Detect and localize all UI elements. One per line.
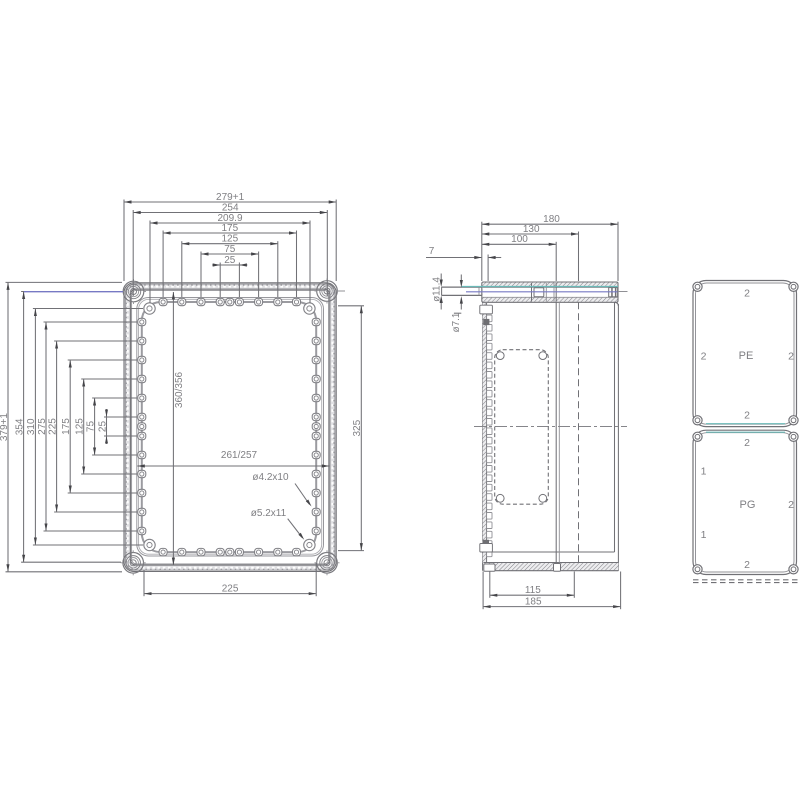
svg-text:2: 2 [701, 351, 707, 363]
svg-text:354: 354 [14, 418, 25, 435]
svg-text:75: 75 [224, 244, 236, 255]
svg-text:185: 185 [525, 596, 542, 607]
svg-text:ø5.2x11: ø5.2x11 [251, 508, 287, 519]
svg-text:310: 310 [26, 418, 37, 435]
svg-text:115: 115 [525, 585, 541, 596]
svg-text:254: 254 [222, 202, 239, 213]
svg-text:2: 2 [744, 288, 750, 300]
svg-text:175: 175 [221, 223, 238, 234]
svg-text:325: 325 [352, 419, 363, 436]
svg-text:1: 1 [701, 466, 707, 478]
svg-text:25: 25 [97, 421, 108, 433]
svg-text:PE: PE [739, 350, 754, 362]
svg-text:75: 75 [85, 421, 96, 433]
svg-text:ø4.2x10: ø4.2x10 [252, 472, 289, 483]
svg-text:100: 100 [511, 234, 528, 245]
svg-text:2: 2 [788, 499, 794, 511]
svg-text:261/257: 261/257 [221, 450, 258, 461]
svg-text:PG: PG [740, 499, 756, 511]
svg-text:275: 275 [37, 418, 48, 435]
svg-text:25: 25 [224, 255, 236, 266]
svg-text:2: 2 [788, 351, 794, 363]
svg-text:175: 175 [61, 418, 72, 435]
svg-text:ø7.1: ø7.1 [451, 312, 462, 332]
svg-text:279+1: 279+1 [216, 192, 245, 203]
svg-text:2: 2 [744, 559, 750, 571]
svg-text:225: 225 [47, 418, 58, 435]
svg-text:1: 1 [701, 529, 707, 541]
svg-text:225: 225 [222, 583, 239, 594]
svg-text:360/356: 360/356 [174, 371, 185, 408]
svg-text:180: 180 [543, 214, 560, 225]
svg-text:2: 2 [744, 437, 750, 449]
svg-text:379+1: 379+1 [0, 413, 10, 442]
svg-text:2: 2 [744, 410, 750, 422]
svg-text:7: 7 [429, 246, 435, 257]
svg-text:125: 125 [75, 418, 86, 435]
